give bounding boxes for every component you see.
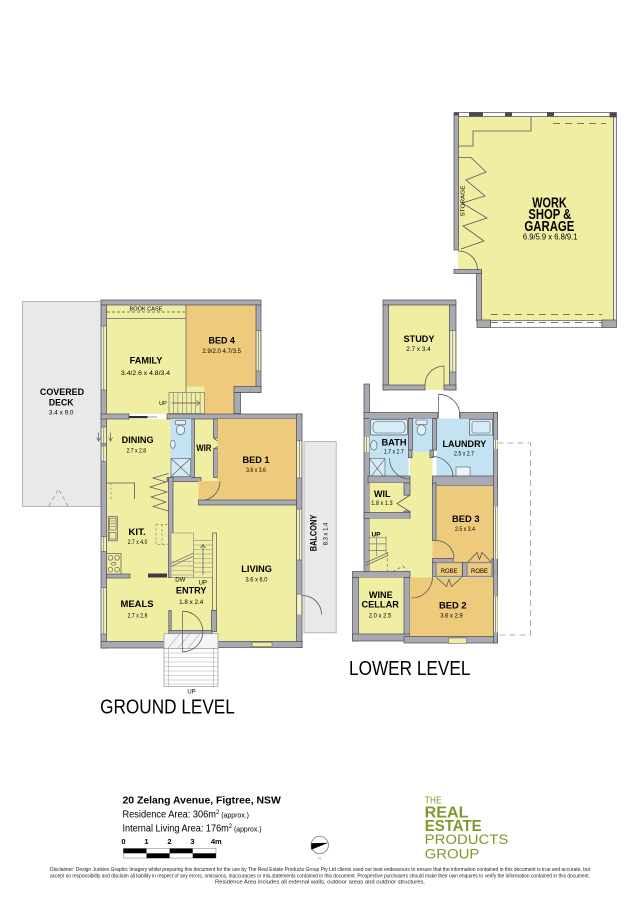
svg-text:2.7 x 3.4: 2.7 x 3.4 bbox=[406, 346, 431, 353]
svg-text:LAUNDRY: LAUNDRY bbox=[443, 439, 487, 450]
svg-text:BATH: BATH bbox=[382, 437, 407, 448]
svg-text:6.9/5.9 x 6.8/9.1: 6.9/5.9 x 6.8/9.1 bbox=[523, 232, 578, 241]
svg-text:BOOK CASE: BOOK CASE bbox=[130, 307, 163, 313]
svg-text:STORAGE: STORAGE bbox=[461, 185, 467, 216]
svg-text:Residence Area: 306m2 (approx.: Residence Area: 306m2 (approx.) bbox=[123, 809, 250, 821]
svg-text:1.8 x 2.4: 1.8 x 2.4 bbox=[179, 599, 203, 606]
svg-text:0: 0 bbox=[121, 837, 125, 846]
svg-text:KIT.: KIT. bbox=[128, 527, 145, 538]
svg-text:1.8 x 1.3: 1.8 x 1.3 bbox=[371, 500, 392, 507]
svg-text:2.0 x 2.5: 2.0 x 2.5 bbox=[369, 612, 392, 619]
svg-text:Disclaimer: Design Junkies Gra: Disclaimer: Design Junkies Graphic Image… bbox=[50, 867, 590, 873]
svg-text:LOWER LEVEL: LOWER LEVEL bbox=[349, 658, 470, 680]
svg-text:ENTRY: ENTRY bbox=[176, 585, 207, 596]
svg-text:BALCONY: BALCONY bbox=[309, 514, 320, 551]
svg-text:8.3 x 1.4: 8.3 x 1.4 bbox=[322, 523, 329, 546]
svg-text:3.6 x 3.6: 3.6 x 3.6 bbox=[246, 467, 266, 474]
svg-text:3.4 x 9.0: 3.4 x 9.0 bbox=[49, 409, 74, 416]
svg-text:2.7 x 2.8: 2.7 x 2.8 bbox=[126, 447, 146, 454]
svg-text:BED 1: BED 1 bbox=[243, 455, 271, 466]
svg-text:20 Zelang Avenue, Figtree, NSW: 20 Zelang Avenue, Figtree, NSW bbox=[123, 795, 281, 807]
svg-text:4m: 4m bbox=[211, 837, 222, 846]
svg-text:Residence Area includes all ex: Residence Area includes all external wal… bbox=[215, 880, 425, 886]
svg-text:UP: UP bbox=[371, 531, 381, 538]
svg-text:UP: UP bbox=[187, 689, 195, 695]
svg-text:N: N bbox=[318, 857, 321, 861]
svg-text:GROUND LEVEL: GROUND LEVEL bbox=[100, 697, 235, 719]
svg-text:UP: UP bbox=[199, 580, 207, 586]
svg-text:LIVING: LIVING bbox=[241, 564, 272, 575]
svg-text:Internal Living Area: 176m2 (a: Internal Living Area: 176m2 (approx.) bbox=[123, 823, 262, 835]
svg-text:1: 1 bbox=[144, 837, 148, 846]
svg-text:2.7 x 2.8: 2.7 x 2.8 bbox=[128, 613, 148, 620]
svg-text:3.6 x 6.0: 3.6 x 6.0 bbox=[246, 577, 268, 584]
svg-text:2.5 x 3.4: 2.5 x 3.4 bbox=[455, 526, 475, 533]
svg-text:2: 2 bbox=[167, 837, 171, 846]
svg-text:CELLAR: CELLAR bbox=[361, 600, 399, 611]
svg-text:3.6 x 2.9: 3.6 x 2.9 bbox=[440, 613, 463, 620]
svg-text:GROUP: GROUP bbox=[425, 846, 480, 862]
svg-text:accept no responsibility and d: accept no responsibility and disclaim al… bbox=[50, 873, 590, 879]
svg-text:BED 4: BED 4 bbox=[209, 336, 236, 347]
svg-text:2.5 x 2.7: 2.5 x 2.7 bbox=[454, 450, 474, 457]
svg-text:2.9/2.0 4.7/3.5: 2.9/2.0 4.7/3.5 bbox=[202, 348, 241, 355]
svg-text:UP: UP bbox=[159, 401, 167, 407]
svg-text:WIR: WIR bbox=[196, 443, 211, 454]
svg-text:MEALS: MEALS bbox=[121, 599, 154, 610]
svg-text:STUDY: STUDY bbox=[404, 334, 436, 345]
svg-text:ROBE: ROBE bbox=[441, 569, 458, 575]
svg-text:3.4/2.6 x 4.8/3.4: 3.4/2.6 x 4.8/3.4 bbox=[121, 370, 170, 377]
svg-text:ROBE: ROBE bbox=[471, 569, 488, 575]
svg-text:2.7 x 4.0: 2.7 x 4.0 bbox=[128, 539, 148, 546]
svg-text:DECK: DECK bbox=[49, 397, 74, 408]
svg-text:1.7 x 2.7: 1.7 x 2.7 bbox=[384, 448, 404, 455]
svg-text:3: 3 bbox=[190, 837, 194, 846]
svg-text:DINING: DINING bbox=[122, 435, 154, 446]
svg-text:BED 3: BED 3 bbox=[452, 514, 480, 525]
svg-text:DW: DW bbox=[175, 578, 185, 584]
svg-text:BED 2: BED 2 bbox=[439, 601, 467, 612]
svg-text:FAMILY: FAMILY bbox=[130, 356, 163, 367]
svg-text:WIL: WIL bbox=[374, 489, 391, 500]
